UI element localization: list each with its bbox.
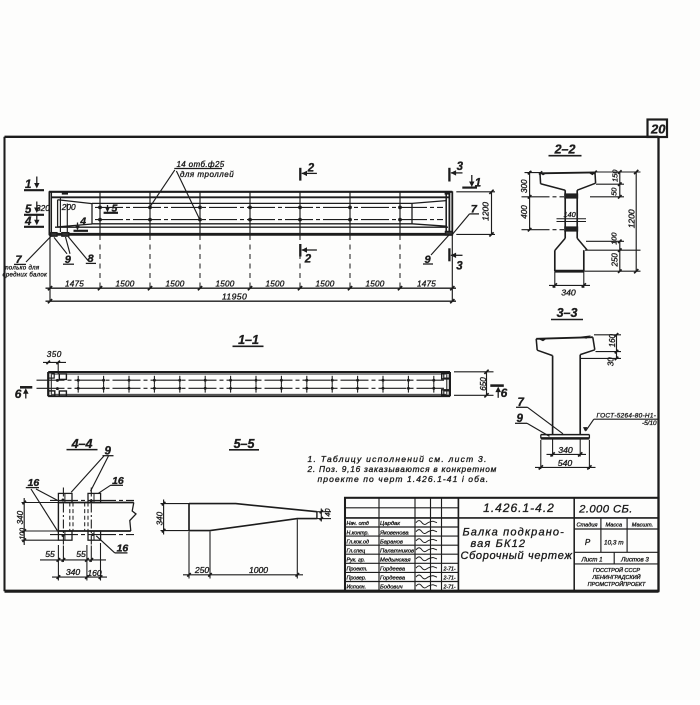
svg-text:3: 3 bbox=[457, 161, 464, 173]
svg-text:4: 4 bbox=[24, 216, 32, 228]
svg-text:2: 2 bbox=[304, 253, 312, 265]
svg-text:6: 6 bbox=[501, 386, 508, 400]
svg-text:30: 30 bbox=[607, 357, 616, 366]
svg-text:Лист 1: Лист 1 bbox=[580, 556, 602, 563]
svg-text:1200: 1200 bbox=[626, 209, 636, 228]
svg-text:Медынская: Медынская bbox=[380, 557, 411, 563]
svg-text:14 отб.ф25: 14 отб.ф25 bbox=[177, 160, 225, 169]
svg-text:160: 160 bbox=[608, 334, 617, 348]
svg-text:1200: 1200 bbox=[481, 202, 491, 221]
svg-text:1475: 1475 bbox=[417, 279, 436, 288]
svg-text:160: 160 bbox=[87, 568, 102, 578]
svg-text:2. Поз. 9,16 заказываются в ко: 2. Поз. 9,16 заказываются в конкретном bbox=[307, 464, 498, 474]
svg-text:6: 6 bbox=[15, 387, 22, 401]
svg-text:1500: 1500 bbox=[365, 279, 384, 288]
svg-text:2–2: 2–2 bbox=[554, 143, 576, 157]
svg-text:1.426.1-4.2: 1.426.1-4.2 bbox=[483, 501, 555, 515]
svg-text:1. Таблицу исполнений см. лис: 1. Таблицу исполнений см. лист 3. bbox=[308, 454, 488, 464]
svg-text:40: 40 bbox=[323, 508, 332, 516]
svg-text:Листов 3: Листов 3 bbox=[620, 556, 649, 563]
svg-text:4: 4 bbox=[79, 216, 86, 228]
svg-text:Стадия: Стадия bbox=[577, 523, 598, 529]
svg-text:Бодович: Бодович bbox=[380, 585, 403, 591]
svg-text:300: 300 bbox=[520, 179, 529, 193]
svg-text:250: 250 bbox=[611, 253, 620, 268]
svg-text:150: 150 bbox=[611, 169, 620, 182]
svg-text:ЛЕНИНГРАДСКИЙ: ЛЕНИНГРАДСКИЙ bbox=[591, 573, 640, 581]
svg-text:1500: 1500 bbox=[215, 279, 234, 288]
svg-text:ПРОМСТРОЙПРОЕКТ: ПРОМСТРОЙПРОЕКТ bbox=[588, 580, 646, 588]
svg-text:вая БК12: вая БК12 bbox=[471, 538, 527, 550]
svg-text:5: 5 bbox=[112, 203, 118, 215]
svg-text:1500: 1500 bbox=[315, 279, 334, 288]
svg-text:Нач. отд: Нач. отд bbox=[347, 521, 369, 527]
svg-text:Палатников: Палатников bbox=[380, 548, 414, 554]
svg-text:Исполн.: Исполн. bbox=[347, 585, 367, 591]
svg-text:Баранов: Баранов bbox=[380, 539, 403, 545]
svg-text:Рук. гр.: Рук. гр. bbox=[347, 557, 366, 563]
svg-text:1: 1 bbox=[25, 179, 31, 191]
svg-text:340: 340 bbox=[66, 567, 81, 577]
svg-text:1500: 1500 bbox=[165, 279, 184, 288]
svg-text:1: 1 bbox=[475, 177, 481, 189]
svg-text:1475: 1475 bbox=[65, 279, 84, 288]
svg-text:540: 540 bbox=[558, 458, 573, 468]
svg-text:Проект.: Проект. bbox=[347, 567, 368, 573]
svg-text:ГОСТ-5264-80-Н1-: ГОСТ-5264-80-Н1- bbox=[597, 413, 657, 420]
svg-text:340: 340 bbox=[561, 288, 576, 298]
svg-text:Р: Р bbox=[585, 538, 591, 547]
svg-text:11950: 11950 bbox=[222, 292, 247, 302]
svg-text:250: 250 bbox=[194, 565, 210, 575]
svg-text:340: 340 bbox=[16, 510, 25, 524]
svg-text:Масса: Масса bbox=[606, 523, 623, 529]
svg-text:средних балок: средних балок bbox=[3, 272, 49, 279]
svg-text:340: 340 bbox=[558, 445, 573, 455]
svg-text:только для: только для bbox=[4, 265, 40, 272]
svg-text:Гл.спец: Гл.спец bbox=[347, 548, 366, 554]
svg-text:20: 20 bbox=[650, 122, 666, 137]
svg-text:Гордеева: Гордеева bbox=[380, 576, 406, 582]
svg-text:1–1: 1–1 bbox=[238, 333, 259, 347]
svg-text:5: 5 bbox=[25, 204, 32, 216]
svg-text:2-71-: 2-71- bbox=[443, 585, 456, 591]
svg-text:ГОССТРОЙ СССР: ГОССТРОЙ СССР bbox=[593, 566, 641, 574]
svg-text:55: 55 bbox=[45, 549, 55, 559]
svg-text:55: 55 bbox=[76, 549, 86, 559]
svg-text:Гл.кок.од: Гл.кок.од bbox=[347, 539, 369, 545]
svg-text:Яковенова: Яковенова bbox=[379, 530, 409, 536]
svg-text:650: 650 bbox=[479, 377, 488, 391]
svg-text:-5/10: -5/10 bbox=[642, 420, 657, 427]
svg-text:100: 100 bbox=[20, 528, 27, 540]
svg-text:2.000 СБ.: 2.000 СБ. bbox=[578, 504, 633, 516]
svg-text:3: 3 bbox=[456, 260, 463, 272]
svg-text:Масшт.: Масшт. bbox=[632, 523, 653, 529]
svg-text:для троллей: для троллей bbox=[180, 170, 234, 179]
svg-text:50: 50 bbox=[609, 187, 618, 196]
svg-text:400: 400 bbox=[520, 205, 529, 219]
svg-text:1500: 1500 bbox=[265, 279, 284, 288]
svg-text:2: 2 bbox=[307, 163, 315, 175]
svg-text:Сборочный чертеж: Сборочный чертеж bbox=[461, 550, 573, 562]
svg-text:140: 140 bbox=[564, 210, 576, 219]
svg-text:200: 200 bbox=[61, 202, 76, 212]
svg-text:350: 350 bbox=[47, 350, 62, 359]
svg-text:Цардак: Цардак bbox=[380, 521, 400, 527]
svg-text:1500: 1500 bbox=[115, 279, 134, 288]
svg-text:1000: 1000 bbox=[249, 565, 268, 575]
svg-text:2-71-: 2-71- bbox=[443, 567, 456, 573]
svg-text:Провер.: Провер. bbox=[347, 576, 367, 582]
svg-text:340: 340 bbox=[155, 511, 164, 525]
svg-text:Балка подкрано-: Балка подкрано- bbox=[463, 526, 566, 538]
svg-text:10,3 т: 10,3 т bbox=[604, 540, 624, 547]
svg-text:проекте по черт 1.426.1-41 і о: проекте по черт 1.426.1-41 і оба. bbox=[318, 474, 490, 484]
svg-text:100: 100 bbox=[610, 232, 619, 245]
svg-text:5–5: 5–5 bbox=[234, 437, 256, 451]
svg-text:3–3: 3–3 bbox=[557, 306, 578, 320]
svg-text:Н.контр.: Н.контр. bbox=[347, 530, 369, 536]
svg-text:2-71-: 2-71- bbox=[443, 576, 456, 582]
svg-text:Гордеева: Гордеева bbox=[380, 567, 406, 573]
